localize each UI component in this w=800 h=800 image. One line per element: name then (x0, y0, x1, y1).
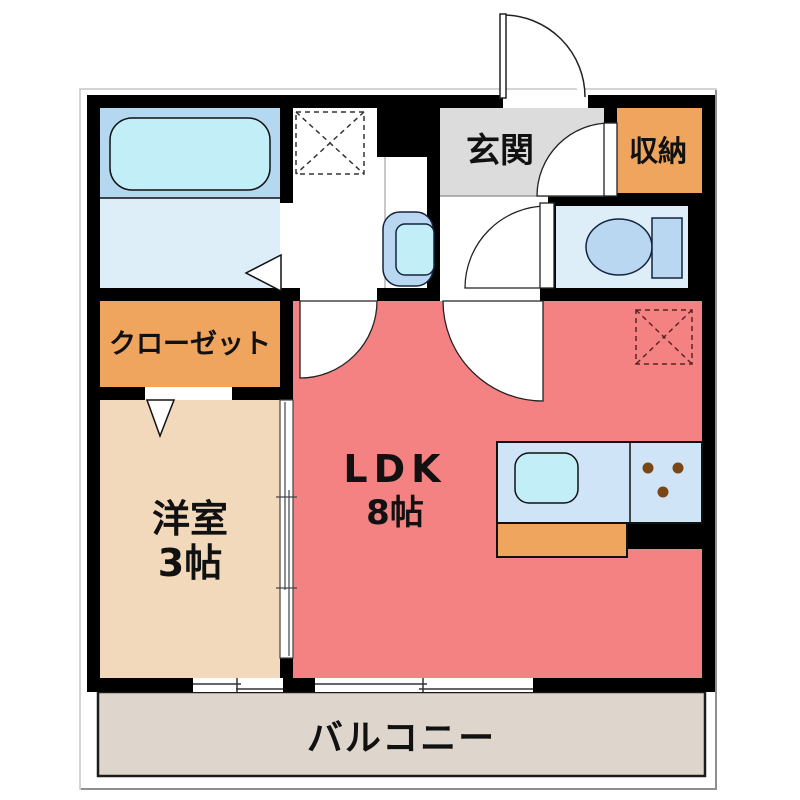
closet-room (100, 301, 280, 387)
toilet-icon (586, 218, 682, 278)
kitchen-sink-icon (515, 453, 578, 503)
entrance-door-icon (500, 14, 585, 98)
western-room (100, 400, 280, 678)
kitchen-cabinet (497, 523, 627, 557)
floorplan-drawing (0, 0, 800, 800)
storage-room (617, 108, 702, 193)
floorplan: 玄関 収納 クローゼット 洋室 3帖 LDK 8帖 バルコニー (0, 0, 800, 800)
balcony-room (98, 692, 705, 776)
bathtub-icon (100, 118, 280, 198)
